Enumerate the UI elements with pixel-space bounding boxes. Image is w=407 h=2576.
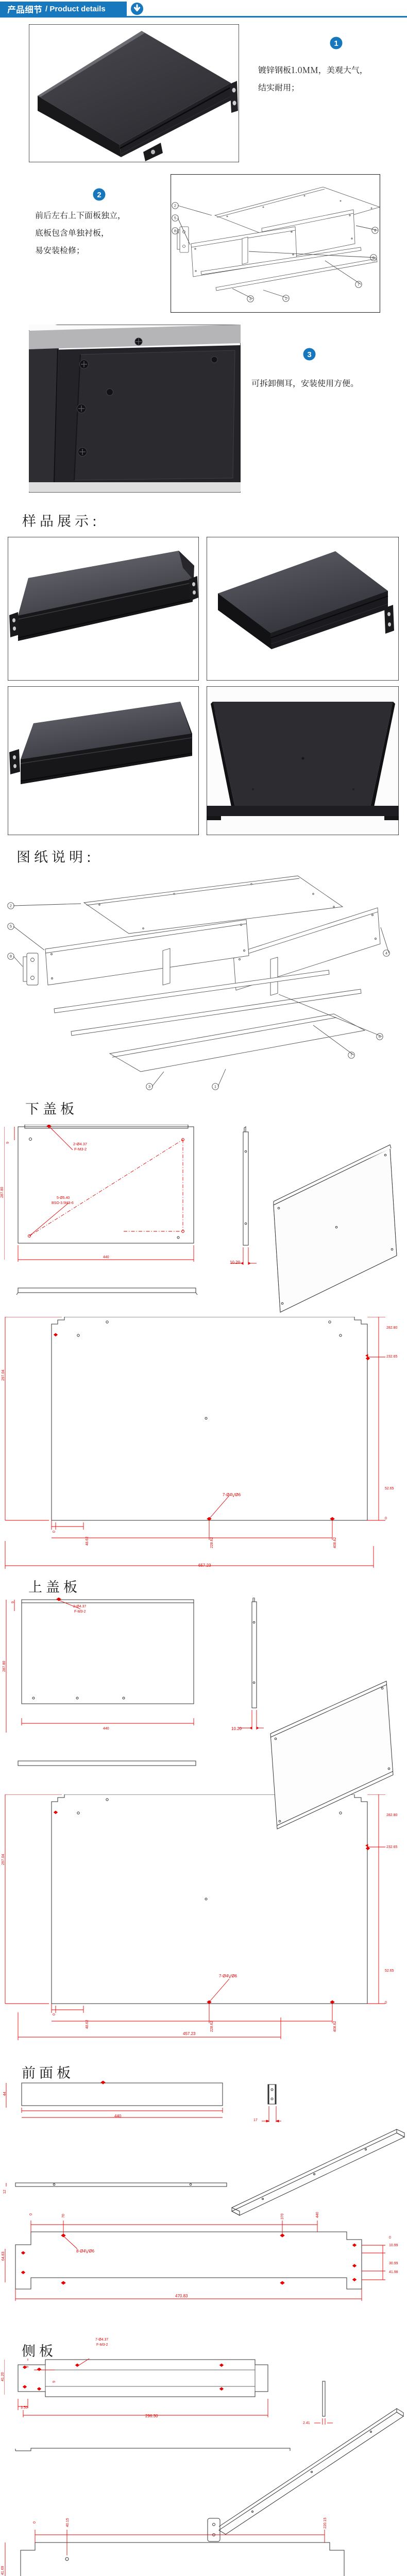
svg-text:1: 1 bbox=[334, 39, 338, 48]
svg-text:7: 7 bbox=[358, 282, 360, 287]
svg-text:8: 8 bbox=[174, 229, 176, 233]
svg-text:5: 5 bbox=[174, 216, 176, 221]
svg-text:7: 7 bbox=[350, 1053, 352, 1058]
svg-text:4: 4 bbox=[374, 228, 376, 233]
svg-text:2: 2 bbox=[97, 191, 101, 199]
svg-text:3: 3 bbox=[249, 297, 251, 301]
svg-text:2: 2 bbox=[174, 204, 176, 208]
svg-text:8: 8 bbox=[10, 954, 12, 959]
svg-text:4: 4 bbox=[385, 951, 387, 956]
svg-text:1: 1 bbox=[285, 296, 287, 301]
svg-text:6: 6 bbox=[379, 1035, 381, 1039]
svg-text:3: 3 bbox=[307, 350, 311, 359]
svg-text:2: 2 bbox=[10, 904, 12, 908]
svg-text:6: 6 bbox=[372, 256, 375, 260]
svg-text:5: 5 bbox=[10, 924, 12, 929]
svg-text:3: 3 bbox=[148, 1084, 150, 1089]
svg-text:1: 1 bbox=[214, 1084, 216, 1089]
